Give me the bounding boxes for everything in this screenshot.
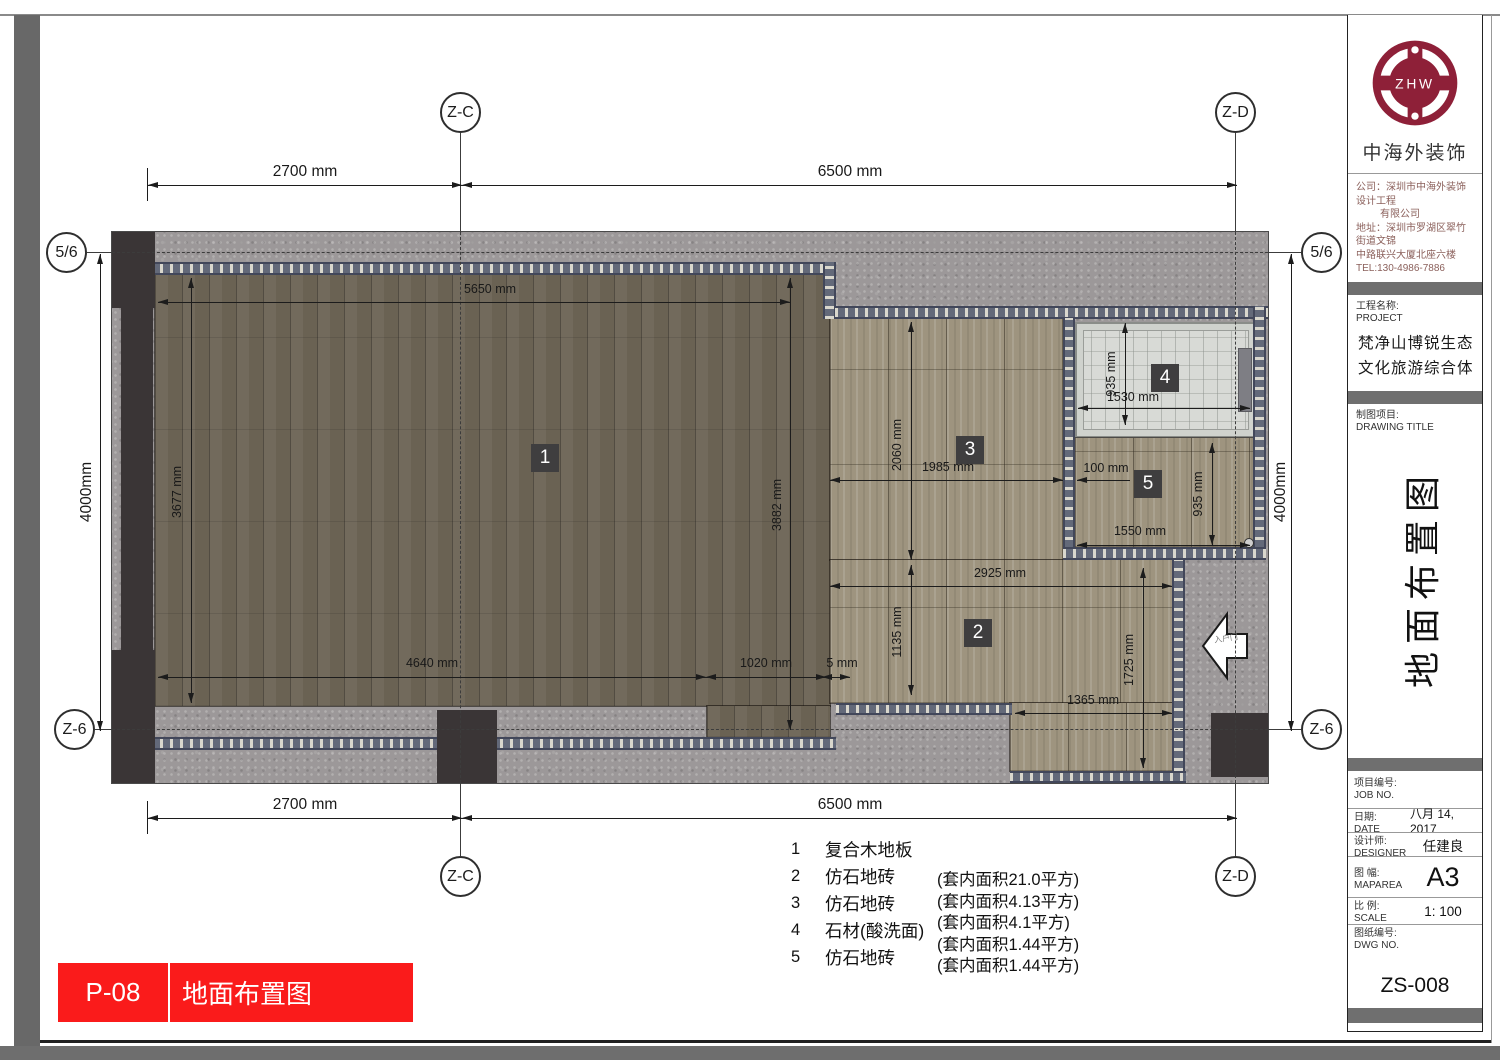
company-brand: 中海外装饰: [1348, 138, 1482, 165]
scale-row: 比 例: SCALE 1: 100: [1348, 897, 1482, 924]
dim-line-r4-v: [1125, 323, 1126, 425]
date-row: 日期: DATE 八月 14, 2017: [1348, 808, 1482, 832]
region-badge-5: 5: [1134, 470, 1162, 498]
company-line: 中路联兴大厦北座六楼: [1356, 249, 1474, 263]
drawing-sheet: 入户门 2700 mm 6500 mm 2700 mm 6500 mm 4000…: [0, 0, 1500, 1060]
company-logo: ZHW: [1348, 37, 1482, 134]
dim-line-r5-off: [1077, 480, 1130, 481]
dim-r1-4640: 4640 mm: [406, 656, 458, 670]
title-block: ZHW 中海外装饰 公司：深圳市中海外装饰设计工程 有限公司 地址：深圳市罗湖区…: [1347, 15, 1483, 1032]
dim-r4-1530: 1530 mm: [1107, 390, 1159, 404]
page-top-edge: [0, 14, 1500, 16]
dim-line-bottom-6500: [462, 818, 1237, 819]
dim-line-r1-bottom: [158, 677, 706, 678]
dim-r2-1135: 1135 mm: [890, 606, 904, 657]
divider-band: [1348, 1008, 1482, 1023]
legend-name: 仿石地砖: [825, 945, 895, 970]
divider-band: [1348, 758, 1482, 771]
dim-line-r1-notch: [706, 677, 826, 678]
label-cn: 图纸编号:: [1354, 928, 1476, 940]
dim-line-r2-w: [830, 586, 1172, 587]
label-cn: 项目编号:: [1354, 778, 1410, 790]
legend-item: 4石材(酸洗面): [785, 917, 945, 944]
region-2-tile-upper: [830, 560, 1172, 703]
job-no-value: [1410, 778, 1476, 805]
mosaic-band-bottom-right: [1010, 771, 1186, 783]
dim-line-r5-v: [1212, 443, 1213, 545]
dim-r2-2925: 2925 mm: [974, 566, 1026, 580]
grid-marker-label: Z-C: [447, 868, 474, 886]
legend-item: 5仿石地砖: [785, 944, 945, 971]
entry-arrow-icon: [1201, 608, 1249, 684]
axis-56-leader-right: [1268, 252, 1301, 253]
dim-r3-2060: 2060 mm: [890, 419, 904, 471]
legend-no: 1: [785, 840, 825, 859]
grid-marker-zc-top: Z-C: [440, 92, 481, 133]
divider-band: [1348, 282, 1482, 295]
dim-top-2700: 2700 mm: [273, 163, 338, 181]
label-cn: 比 例:: [1354, 901, 1410, 913]
company-line: 地址：深圳市罗湖区翠竹街道文锦: [1356, 222, 1474, 249]
material-legend: 1复合木地板 2仿石地砖 3仿石地砖 4石材(酸洗面) 5仿石地砖: [785, 836, 945, 971]
axis-zc-line: [460, 232, 461, 783]
designer-label: 设计师: DESIGNER: [1354, 836, 1410, 853]
region-4-door-sill: [1238, 348, 1252, 412]
region-badge-2: 2: [964, 619, 992, 647]
page-left-shadow: [14, 15, 40, 1046]
label-en: MAPAREA: [1354, 880, 1410, 892]
grid-marker-label: 5/6: [1310, 244, 1332, 262]
column-bottom-left: [112, 650, 155, 783]
sheet-bottom-border: [40, 1040, 1492, 1043]
grid-marker-z6-left: Z-6: [54, 709, 95, 750]
dim-line-r2-right-v: [1143, 568, 1144, 768]
grid-marker-label: Z-6: [63, 721, 87, 739]
legend-name: 仿石地砖: [825, 864, 895, 889]
scale-label: 比 例: SCALE: [1354, 901, 1410, 921]
axis-56-line: [112, 252, 1268, 253]
label-en: JOB NO.: [1354, 790, 1410, 802]
dim-bottom-2700: 2700 mm: [273, 796, 338, 814]
project-section: 工程名称: PROJECT: [1348, 295, 1482, 325]
legend-item: 2仿石地砖: [785, 863, 945, 890]
sheet-size-label: 图 幅: MAPAREA: [1354, 860, 1410, 894]
legend-no: 5: [785, 948, 825, 967]
grid-marker-56-right: 5/6: [1301, 232, 1342, 273]
dim-r5-100: 100 mm: [1083, 461, 1128, 475]
axis-56-leader-left: [87, 252, 112, 253]
mosaic-band-top-left: [150, 262, 835, 275]
grid-marker-label: Z-6: [1310, 721, 1334, 739]
grid-marker-label: Z-D: [1222, 868, 1249, 886]
designer-value: 任建良: [1410, 836, 1476, 853]
scale-value: 1: 100: [1410, 901, 1476, 921]
legend-no: 4: [785, 921, 825, 940]
dim-r1-3677: 3677 mm: [170, 466, 184, 518]
dim-r5-935: 935 mm: [1191, 471, 1205, 516]
dim-line-right-4000: [1291, 254, 1292, 731]
dim-line-r5-w: [1077, 545, 1250, 546]
job-no-row: 项目编号: JOB NO.: [1348, 775, 1482, 808]
sheet-size-row: 图 幅: MAPAREA A3: [1348, 856, 1482, 897]
axis-z6-line: [112, 729, 1268, 730]
label-cn: 设计师:: [1354, 836, 1410, 848]
legend-item: 1复合木地板: [785, 836, 945, 863]
page-right-edge: [1491, 15, 1492, 1043]
legend-area: (套内面积1.44平方): [937, 931, 1079, 953]
dim-line-r2-v: [911, 565, 912, 695]
grid-marker-label: Z-C: [447, 104, 474, 122]
mosaic-band-bottom-mid: [836, 703, 1012, 715]
drawing-title-vertical: 地面布置图: [1394, 398, 1438, 758]
sheet-number-bar: P-08 地面布置图: [58, 963, 413, 1022]
dim-r1-1020: 1020 mm: [740, 656, 792, 670]
legend-no: 3: [785, 894, 825, 913]
legend-area: (套内面积21.0平方): [937, 866, 1079, 888]
legend-area: (套内面积4.13平方): [937, 888, 1079, 910]
grid-marker-zd-top: Z-D: [1215, 92, 1256, 133]
job-no-label: 项目编号: JOB NO.: [1354, 778, 1410, 805]
axis-zd-line: [1235, 232, 1236, 783]
page-bottom-shadow: [0, 1046, 1500, 1060]
grid-marker-zd-bottom: Z-D: [1215, 856, 1256, 897]
region-badge-3: 3: [956, 436, 984, 464]
legend-area: (套内面积4.1平方): [937, 909, 1079, 931]
dim-bottom-6500: 6500 mm: [818, 796, 883, 814]
dim-line-r1-left: [191, 278, 192, 703]
dim-r1-5650: 5650 mm: [464, 282, 516, 296]
mosaic-band-right-lower: [1172, 560, 1185, 771]
dim-right-4000: 4000mm: [1272, 462, 1290, 522]
column-bottom-right: [1211, 713, 1268, 777]
region-badge-4: 4: [1151, 364, 1179, 392]
project-label: 工程名称:: [1356, 301, 1474, 313]
project-name: 梵净山博锐生态文化旅游综合体: [1348, 325, 1482, 391]
date-value: 八月 14, 2017: [1410, 812, 1476, 829]
dim-r1-3882: 3882 mm: [770, 479, 784, 531]
grid-marker-zc-bottom: Z-C: [440, 856, 481, 897]
dim-line-r2-bottom: [1015, 713, 1172, 714]
legend-areas: (套内面积21.0平方) (套内面积4.13平方) (套内面积4.1平方) (套…: [937, 866, 1079, 974]
region-3-tile: [830, 318, 1063, 560]
zhw-logo-icon: ZHW: [1369, 37, 1461, 129]
logo-text: ZHW: [1395, 77, 1435, 92]
dim-line-r3-v: [911, 322, 912, 560]
label-cn: 日期:: [1354, 812, 1410, 824]
company-info: 公司：深圳市中海外装饰设计工程 有限公司 地址：深圳市罗湖区翠竹街道文锦 中路联…: [1348, 174, 1482, 282]
legend-no: 2: [785, 867, 825, 886]
region-1-wood-floor: [155, 273, 830, 706]
legend-name: 石材(酸洗面): [825, 918, 924, 943]
column-top-left: [112, 232, 155, 308]
dim-r2-1725: 1725 mm: [1122, 634, 1136, 686]
dim-r2-1365: 1365 mm: [1067, 693, 1119, 707]
date-label: 日期: DATE: [1354, 812, 1410, 829]
dim-r5-1550: 1550 mm: [1114, 524, 1166, 538]
dim-line-r1-top: [158, 302, 790, 303]
dim-left-4000: 4000mm: [78, 462, 96, 522]
company-line: 有限公司: [1356, 208, 1474, 222]
dim-top-6500: 6500 mm: [818, 163, 883, 181]
region-badge-1: 1: [531, 444, 559, 472]
sheet-size-value: A3: [1410, 860, 1476, 894]
project-label-en: PROJECT: [1356, 313, 1474, 325]
dim-line-bottom-2700: [148, 818, 462, 819]
legend-name: 仿石地砖: [825, 891, 895, 916]
company-line: TEL:130-4986-7886: [1356, 262, 1474, 276]
grid-marker-z6-right: Z-6: [1301, 709, 1342, 750]
dim-line-top-2700: [148, 185, 462, 186]
mosaic-band-mid-vertical: [1063, 318, 1075, 560]
company-line: 公司：深圳市中海外装饰设计工程: [1356, 181, 1474, 208]
mosaic-band-right-upper: [1253, 306, 1266, 560]
grid-marker-label: 5/6: [55, 244, 77, 262]
designer-row: 设计师: DESIGNER 任建良: [1348, 832, 1482, 856]
region-1-wood-floor-notch: [707, 706, 830, 737]
legend-name: 复合木地板: [825, 837, 913, 862]
dwg-no-value: ZS-008: [1354, 974, 1476, 998]
dim-line-r3-h: [830, 480, 1063, 481]
legend-item: 3仿石地砖: [785, 890, 945, 917]
column-bottom-mid: [437, 710, 497, 783]
mosaic-band-top-right: [835, 306, 1268, 319]
dim-line-top-6500: [462, 185, 1237, 186]
dim-r1-5mm: 5 mm: [826, 656, 857, 670]
axis-z6-leader-right: [1268, 729, 1301, 730]
dim-line-left-4000: [100, 254, 101, 731]
sheet-title: 地面布置图: [170, 963, 413, 1022]
label-en: DWG NO.: [1354, 940, 1476, 952]
grid-marker-label: Z-D: [1222, 104, 1249, 122]
dwg-no-label: 图纸编号: DWG NO.: [1354, 928, 1476, 952]
label-cn: 图 幅:: [1354, 868, 1410, 880]
legend-area: (套内面积1.44平方): [937, 952, 1079, 974]
dim-line-r1-gap: [822, 677, 850, 678]
sheet-number: P-08: [58, 963, 170, 1022]
dwg-no-row: 图纸编号: DWG NO. ZS-008: [1348, 924, 1482, 1008]
dim-line-r4-w: [1078, 408, 1250, 409]
grid-marker-56-left: 5/6: [46, 232, 87, 273]
